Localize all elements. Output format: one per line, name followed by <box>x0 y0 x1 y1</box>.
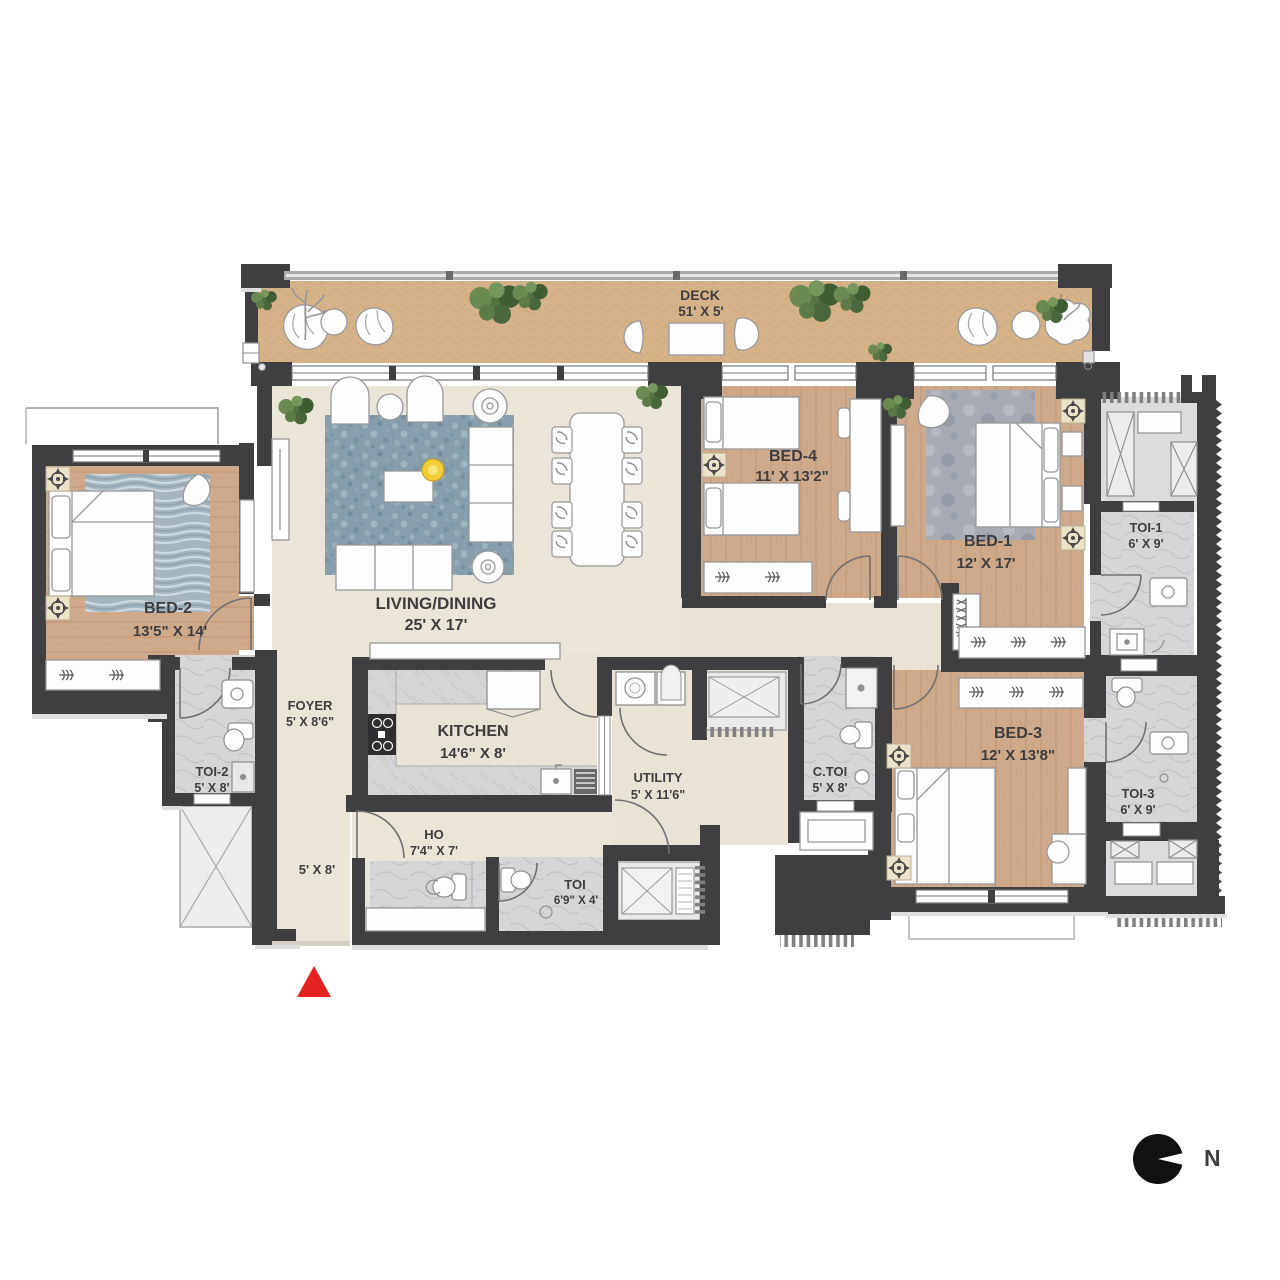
svg-text:UTILITY: UTILITY <box>633 770 682 785</box>
svg-text:C.TOI: C.TOI <box>813 764 847 779</box>
svg-text:5' X 8'6": 5' X 8'6" <box>286 715 334 729</box>
svg-text:HO: HO <box>424 827 444 842</box>
svg-text:5' X 8': 5' X 8' <box>812 781 847 795</box>
svg-text:BED-1: BED-1 <box>964 533 1012 550</box>
svg-text:25' X 17': 25' X 17' <box>405 617 468 634</box>
svg-text:LIVING/DINING: LIVING/DINING <box>376 594 497 613</box>
svg-text:N: N <box>1204 1145 1221 1171</box>
svg-text:51' X 5': 51' X 5' <box>678 304 723 319</box>
svg-text:6' X 9': 6' X 9' <box>1128 537 1163 551</box>
svg-text:5' X 8': 5' X 8' <box>299 862 336 877</box>
svg-text:TOI-2: TOI-2 <box>196 764 229 779</box>
svg-text:BED-3: BED-3 <box>994 725 1042 742</box>
svg-text:13'5" X 14': 13'5" X 14' <box>133 623 207 640</box>
svg-text:TOI-1: TOI-1 <box>1130 520 1163 535</box>
svg-text:TOI: TOI <box>564 877 585 892</box>
svg-text:6' X 9': 6' X 9' <box>1120 803 1155 817</box>
svg-text:12' X 13'8": 12' X 13'8" <box>981 747 1055 764</box>
svg-text:KITCHEN: KITCHEN <box>437 723 508 740</box>
svg-text:DECK: DECK <box>680 287 720 303</box>
svg-text:TOI-3: TOI-3 <box>1122 786 1155 801</box>
svg-text:5' X 8': 5' X 8' <box>194 781 229 795</box>
svg-text:FOYER: FOYER <box>288 698 333 713</box>
svg-text:12' X 17': 12' X 17' <box>957 555 1016 572</box>
svg-text:BED-4: BED-4 <box>769 448 817 465</box>
svg-text:7'4" X 7': 7'4" X 7' <box>410 844 458 858</box>
svg-text:14'6" X 8': 14'6" X 8' <box>440 745 506 762</box>
svg-text:6'9" X 4': 6'9" X 4' <box>554 895 598 907</box>
svg-text:11' X 13'2": 11' X 13'2" <box>755 468 828 485</box>
svg-text:5' X 11'6": 5' X 11'6" <box>631 788 685 802</box>
svg-text:BED-2: BED-2 <box>144 600 192 617</box>
